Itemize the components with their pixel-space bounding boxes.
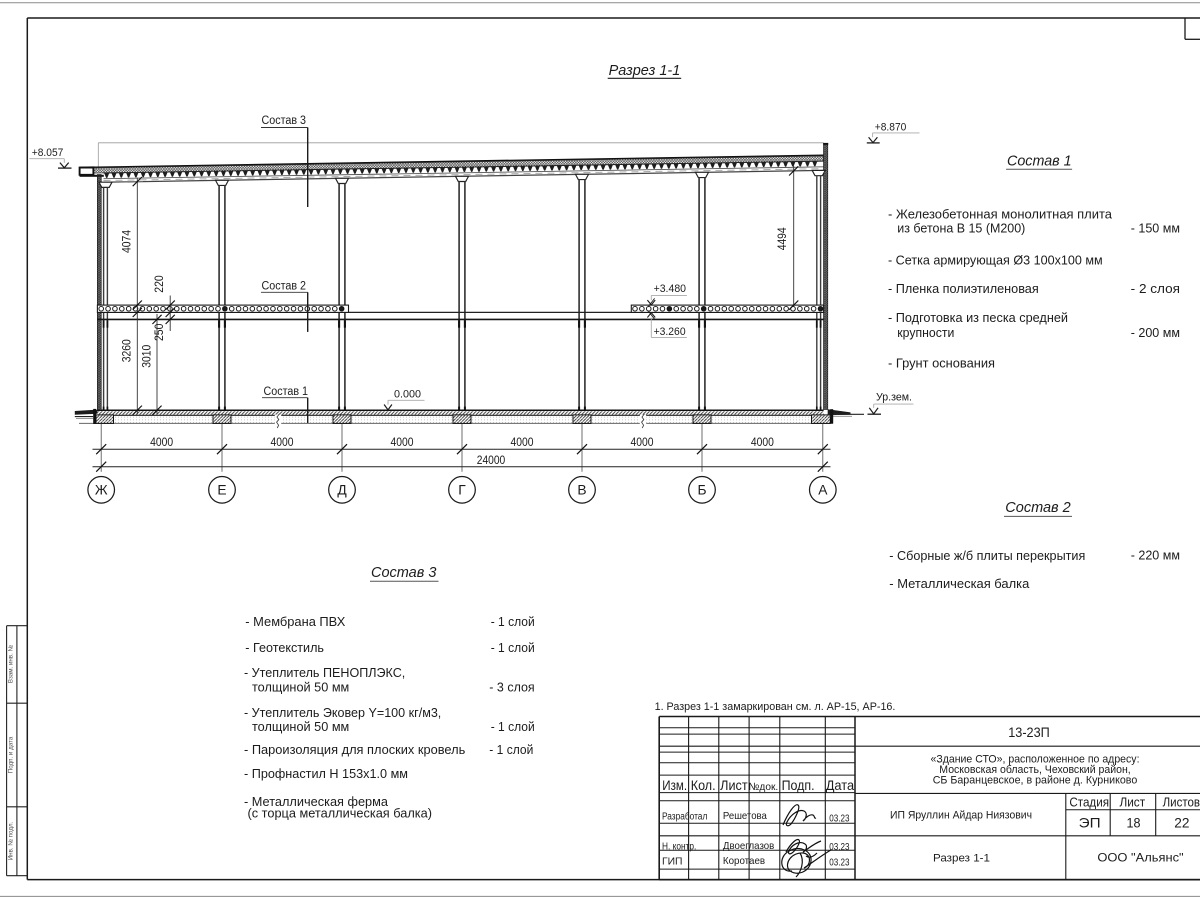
svg-text:Взам. инв. №: Взам. инв. № (7, 644, 14, 683)
svg-text:- 3 слоя: - 3 слоя (489, 680, 534, 695)
svg-text:- Утеплитель ПЕНОПЛЭКС,: - Утеплитель ПЕНОПЛЭКС, (244, 665, 405, 680)
svg-text:4494: 4494 (775, 227, 789, 250)
svg-text:4000: 4000 (150, 435, 173, 449)
svg-text:Листов: Листов (1163, 795, 1200, 809)
svg-text:4000: 4000 (751, 435, 774, 449)
svg-text:Лист: Лист (720, 778, 748, 793)
svg-text:4000: 4000 (631, 435, 654, 449)
svg-text:4000: 4000 (511, 435, 534, 449)
svg-text:- Подготовка из песка средней: - Подготовка из песка средней (888, 310, 1068, 325)
svg-text:толщиной 50 мм: толщиной 50 мм (252, 680, 349, 695)
svg-text:+8.057: +8.057 (32, 147, 64, 159)
svg-text:- 220 мм: - 220 мм (1131, 548, 1180, 563)
svg-text:В: В (577, 483, 586, 498)
svg-text:0.000: 0.000 (394, 388, 421, 400)
svg-text:Инв. № подл.: Инв. № подл. (7, 821, 14, 860)
svg-text:- Мембрана ПВХ: - Мембрана ПВХ (245, 614, 345, 629)
svg-text:Д: Д (337, 483, 347, 498)
svg-text:Состав 1: Состав 1 (1007, 153, 1072, 170)
svg-text:Изм.: Изм. (662, 778, 687, 793)
svg-text:- 2 слоя: - 2 слоя (1131, 281, 1180, 296)
svg-text:- Грунт основания: - Грунт основания (888, 356, 995, 371)
svg-text:03.23: 03.23 (829, 842, 850, 853)
svg-text:Решетова: Решетова (723, 811, 767, 822)
svg-text:ООО "Альянс": ООО "Альянс" (1097, 851, 1183, 865)
svg-text:220: 220 (152, 275, 166, 293)
svg-text:Коротаев: Коротаев (723, 856, 766, 867)
svg-text:- Профнастил Н 153х1.0 мм: - Профнастил Н 153х1.0 мм (244, 766, 408, 781)
svg-text:Ж: Ж (95, 483, 108, 498)
svg-text:Состав 3: Состав 3 (371, 564, 437, 581)
svg-text:толщиной 50 мм: толщиной 50 мм (252, 719, 349, 734)
svg-text:Разработал: Разработал (662, 812, 708, 823)
svg-text:Разрез 1-1: Разрез 1-1 (609, 62, 681, 79)
svg-text:Г: Г (458, 483, 466, 498)
svg-text:(с торца металлическая балка): (с торца металлическая балка) (248, 806, 433, 821)
svg-text:Разрез 1-1: Разрез 1-1 (933, 852, 990, 864)
svg-text:- Металлическая балка: - Металлическая балка (889, 576, 1030, 591)
svg-text:№док.: №док. (749, 781, 779, 793)
svg-text:Состав 3: Состав 3 (262, 115, 307, 127)
svg-text:Кол.: Кол. (691, 778, 716, 793)
svg-text:13-23П: 13-23П (1008, 725, 1050, 740)
svg-text:250: 250 (152, 323, 166, 341)
svg-text:Б: Б (697, 483, 706, 498)
svg-text:Состав 2: Состав 2 (1005, 499, 1071, 516)
svg-text:- Сетка армирующая Ø3 100х100: - Сетка армирующая Ø3 100х100 мм (888, 253, 1103, 268)
svg-text:- Сборные ж/б плиты перекрытия: - Сборные ж/б плиты перекрытия (889, 548, 1085, 563)
svg-text:ЭП: ЭП (1079, 814, 1101, 830)
svg-text:Е: Е (217, 483, 226, 498)
svg-text:- Геотекстиль: - Геотекстиль (245, 640, 324, 655)
svg-text:Ур.зем.: Ур.зем. (876, 392, 912, 404)
svg-text:- 1 слой: - 1 слой (491, 640, 535, 655)
svg-text:- 200 мм: - 200 мм (1131, 325, 1180, 340)
svg-text:А: А (818, 483, 828, 498)
svg-text:ГИП: ГИП (662, 856, 683, 867)
svg-text:Лист: Лист (1119, 795, 1145, 809)
svg-text:+8.870: +8.870 (875, 121, 907, 133)
svg-text:Состав 2: Состав 2 (262, 281, 307, 293)
svg-text:4074: 4074 (120, 230, 134, 253)
svg-text:1. Разрез 1-1 замаркирован см.: 1. Разрез 1-1 замаркирован см. л. АР-15,… (655, 701, 896, 713)
svg-text:3260: 3260 (120, 339, 134, 362)
svg-text:из бетона В 15 (М200): из бетона В 15 (М200) (897, 220, 1025, 235)
svg-text:Стадия: Стадия (1069, 795, 1109, 809)
svg-text:03.23: 03.23 (829, 858, 850, 869)
svg-text:- Пленка полиэтиленовая: - Пленка полиэтиленовая (888, 281, 1039, 296)
svg-text:Подп. и дата: Подп. и дата (7, 736, 14, 773)
svg-text:СБ Баранцевское, в районе д. К: СБ Баранцевское, в районе д. Курниково (933, 774, 1138, 786)
svg-text:Подп.: Подп. (782, 778, 815, 793)
svg-text:Н. контр.: Н. контр. (662, 842, 696, 853)
svg-text:18: 18 (1127, 814, 1141, 830)
svg-text:ИП Яруллин Айдар Ниязович: ИП Яруллин Айдар Ниязович (890, 810, 1032, 822)
svg-text:- Пароизоляция для плоских кро: - Пароизоляция для плоских кровель (244, 742, 466, 757)
svg-text:4000: 4000 (271, 435, 294, 449)
svg-text:- Железобетонная монолитная п: - Железобетонная монолитная плита (888, 206, 1113, 221)
svg-text:Состав 1: Состав 1 (264, 386, 309, 398)
svg-text:Дата: Дата (826, 778, 855, 793)
svg-text:+3.480: +3.480 (654, 283, 686, 295)
svg-text:- 1 слой: - 1 слой (491, 614, 535, 629)
svg-text:03.23: 03.23 (829, 814, 850, 825)
svg-text:24000: 24000 (477, 453, 506, 467)
svg-text:Двоеглазов: Двоеглазов (723, 841, 775, 852)
svg-text:22: 22 (1174, 814, 1189, 830)
svg-text:- Утеплитель Эковер Y=100 кг/м: - Утеплитель Эковер Y=100 кг/м3, (244, 705, 441, 720)
svg-text:+3.260: +3.260 (654, 326, 686, 338)
svg-text:- 1 слой: - 1 слой (489, 742, 533, 757)
svg-text:- 150 мм: - 150 мм (1131, 220, 1180, 235)
svg-text:- 1 слой: - 1 слой (491, 719, 535, 734)
svg-text:4000: 4000 (391, 435, 414, 449)
svg-text:крупности: крупности (897, 325, 954, 340)
svg-text:3010: 3010 (140, 344, 154, 367)
